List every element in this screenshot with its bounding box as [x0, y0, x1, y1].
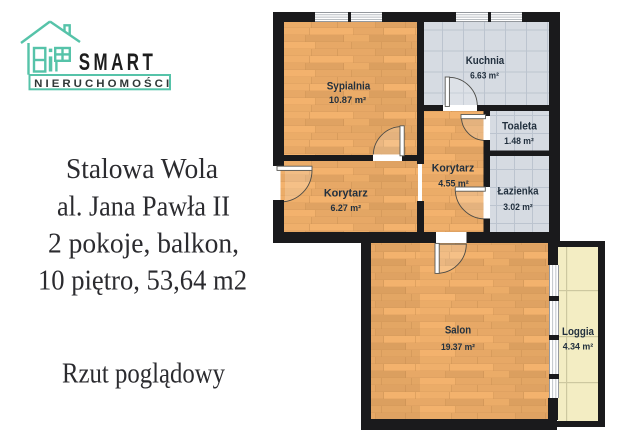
svg-text:1.48 m²: 1.48 m²: [504, 136, 534, 146]
svg-text:Korytarz: Korytarz: [432, 163, 475, 175]
svg-text:Sypialnia: Sypialnia: [327, 81, 371, 93]
svg-text:Toaleta: Toaleta: [502, 121, 538, 133]
svg-text:3.02 m²: 3.02 m²: [503, 202, 533, 212]
svg-text:4.55 m²: 4.55 m²: [438, 179, 469, 189]
svg-text:Kuchnia: Kuchnia: [466, 55, 505, 67]
svg-text:Korytarz: Korytarz: [324, 188, 368, 200]
svg-text:Łazienka: Łazienka: [498, 186, 540, 198]
svg-text:2 pokoje, balkon,: 2 pokoje, balkon,: [48, 228, 239, 259]
svg-text:10.87 m²: 10.87 m²: [329, 95, 366, 105]
svg-text:Rzut poglądowy: Rzut poglądowy: [62, 359, 225, 390]
svg-text:10 piętro, 53,64 m2: 10 piętro, 53,64 m2: [38, 265, 247, 296]
svg-text:al. Jana Pawła II: al. Jana Pawła II: [57, 191, 230, 222]
svg-text:4.34 m²: 4.34 m²: [563, 342, 594, 352]
svg-text:NIERUCHOMOŚCI: NIERUCHOMOŚCI: [34, 77, 172, 90]
svg-text:Stalowa Wola: Stalowa Wola: [66, 154, 219, 185]
svg-text:6.63 m²: 6.63 m²: [470, 71, 499, 81]
svg-text:Loggia: Loggia: [562, 326, 595, 338]
svg-text:SMART: SMART: [79, 49, 157, 76]
svg-text:19.37 m²: 19.37 m²: [441, 342, 475, 352]
svg-text:Salon: Salon: [445, 325, 471, 337]
svg-text:6.27 m²: 6.27 m²: [331, 203, 362, 213]
